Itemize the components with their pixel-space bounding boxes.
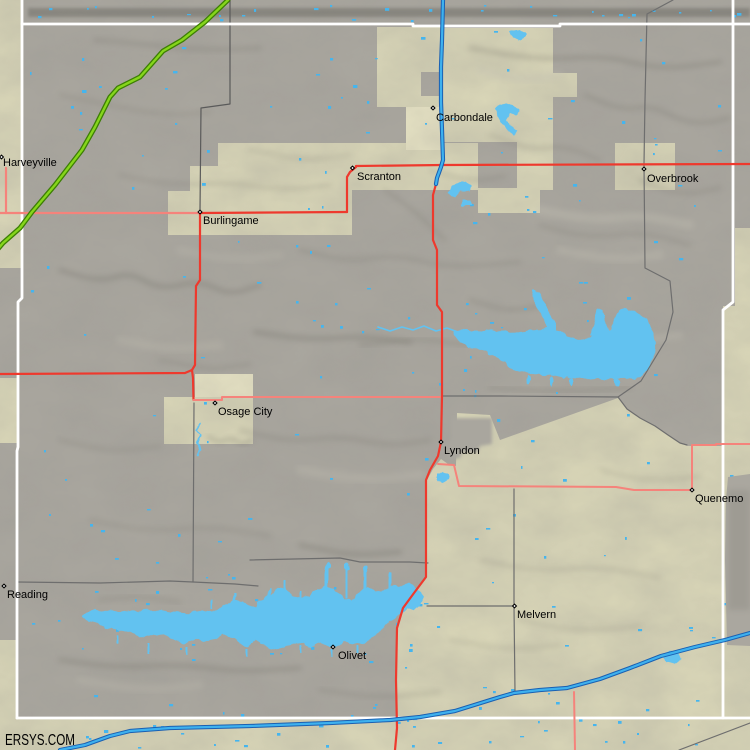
svg-text:Harveyville: Harveyville bbox=[3, 157, 57, 169]
svg-text:Quenemo: Quenemo bbox=[695, 493, 743, 505]
svg-text:Osage City: Osage City bbox=[218, 406, 273, 418]
svg-text:Melvern: Melvern bbox=[517, 609, 556, 621]
svg-text:Lyndon: Lyndon bbox=[444, 445, 480, 457]
svg-text:Scranton: Scranton bbox=[357, 171, 401, 183]
svg-text:Overbrook: Overbrook bbox=[647, 173, 699, 185]
svg-text:ERSYS.COM: ERSYS.COM bbox=[5, 732, 75, 749]
svg-text:Reading: Reading bbox=[7, 589, 48, 601]
svg-text:Olivet: Olivet bbox=[338, 650, 366, 662]
svg-text:Burlingame: Burlingame bbox=[203, 215, 259, 227]
svg-text:Carbondale: Carbondale bbox=[436, 112, 493, 124]
